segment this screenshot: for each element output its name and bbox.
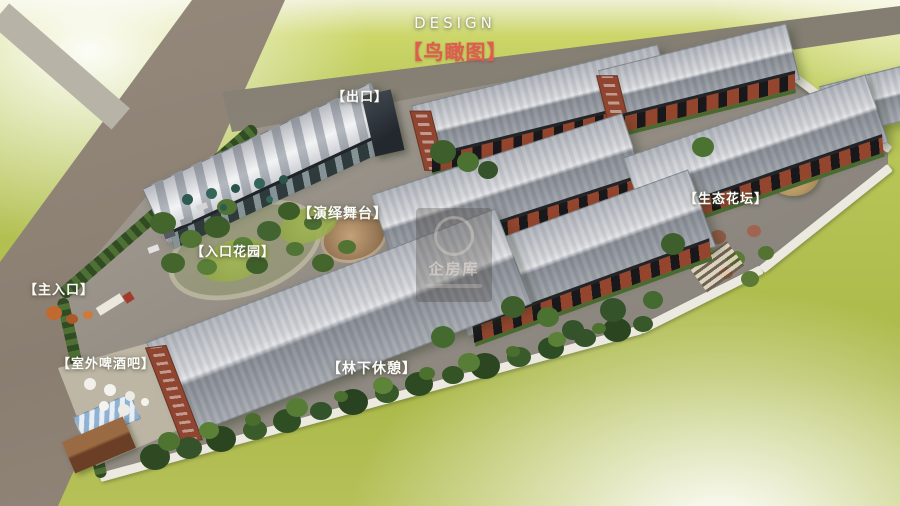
terrace-umbrellas [182, 194, 193, 205]
label-outdoor-beer-bar: 【室外啤酒吧】 [57, 353, 155, 372]
entrance-garden-trees [150, 212, 176, 234]
aerial-render-scene: 企房库 DESIGN 【鸟瞰图】 【出口】 【演绎舞台】 【入口花园】 【主入口… [0, 0, 900, 506]
label-main-entrance: 【主入口】 [24, 279, 94, 298]
label-eco-flower-bed: 【生态花坛】 [684, 188, 768, 207]
tree-band-bottom-light [158, 432, 180, 451]
beer-bar-white-umbrellas [84, 378, 96, 390]
scattered-courtyard-trees [430, 140, 456, 164]
watermark-panel: 企房库 [416, 208, 492, 302]
page-title-birdseye: 【鸟瞰图】 [403, 36, 508, 65]
watermark-subline [426, 284, 482, 288]
label-exit: 【出口】 [332, 86, 388, 105]
autumn-shrubs [46, 306, 62, 320]
watermark-text: 企房库 [416, 258, 492, 279]
label-entrance-garden: 【入口花园】 [191, 241, 275, 260]
design-caption: DESIGN [414, 14, 496, 32]
label-performance-stage: 【演绎舞台】 [298, 203, 388, 223]
label-forest-rest: 【林下休憩】 [327, 358, 417, 378]
watermark-logo-icon [434, 216, 474, 256]
